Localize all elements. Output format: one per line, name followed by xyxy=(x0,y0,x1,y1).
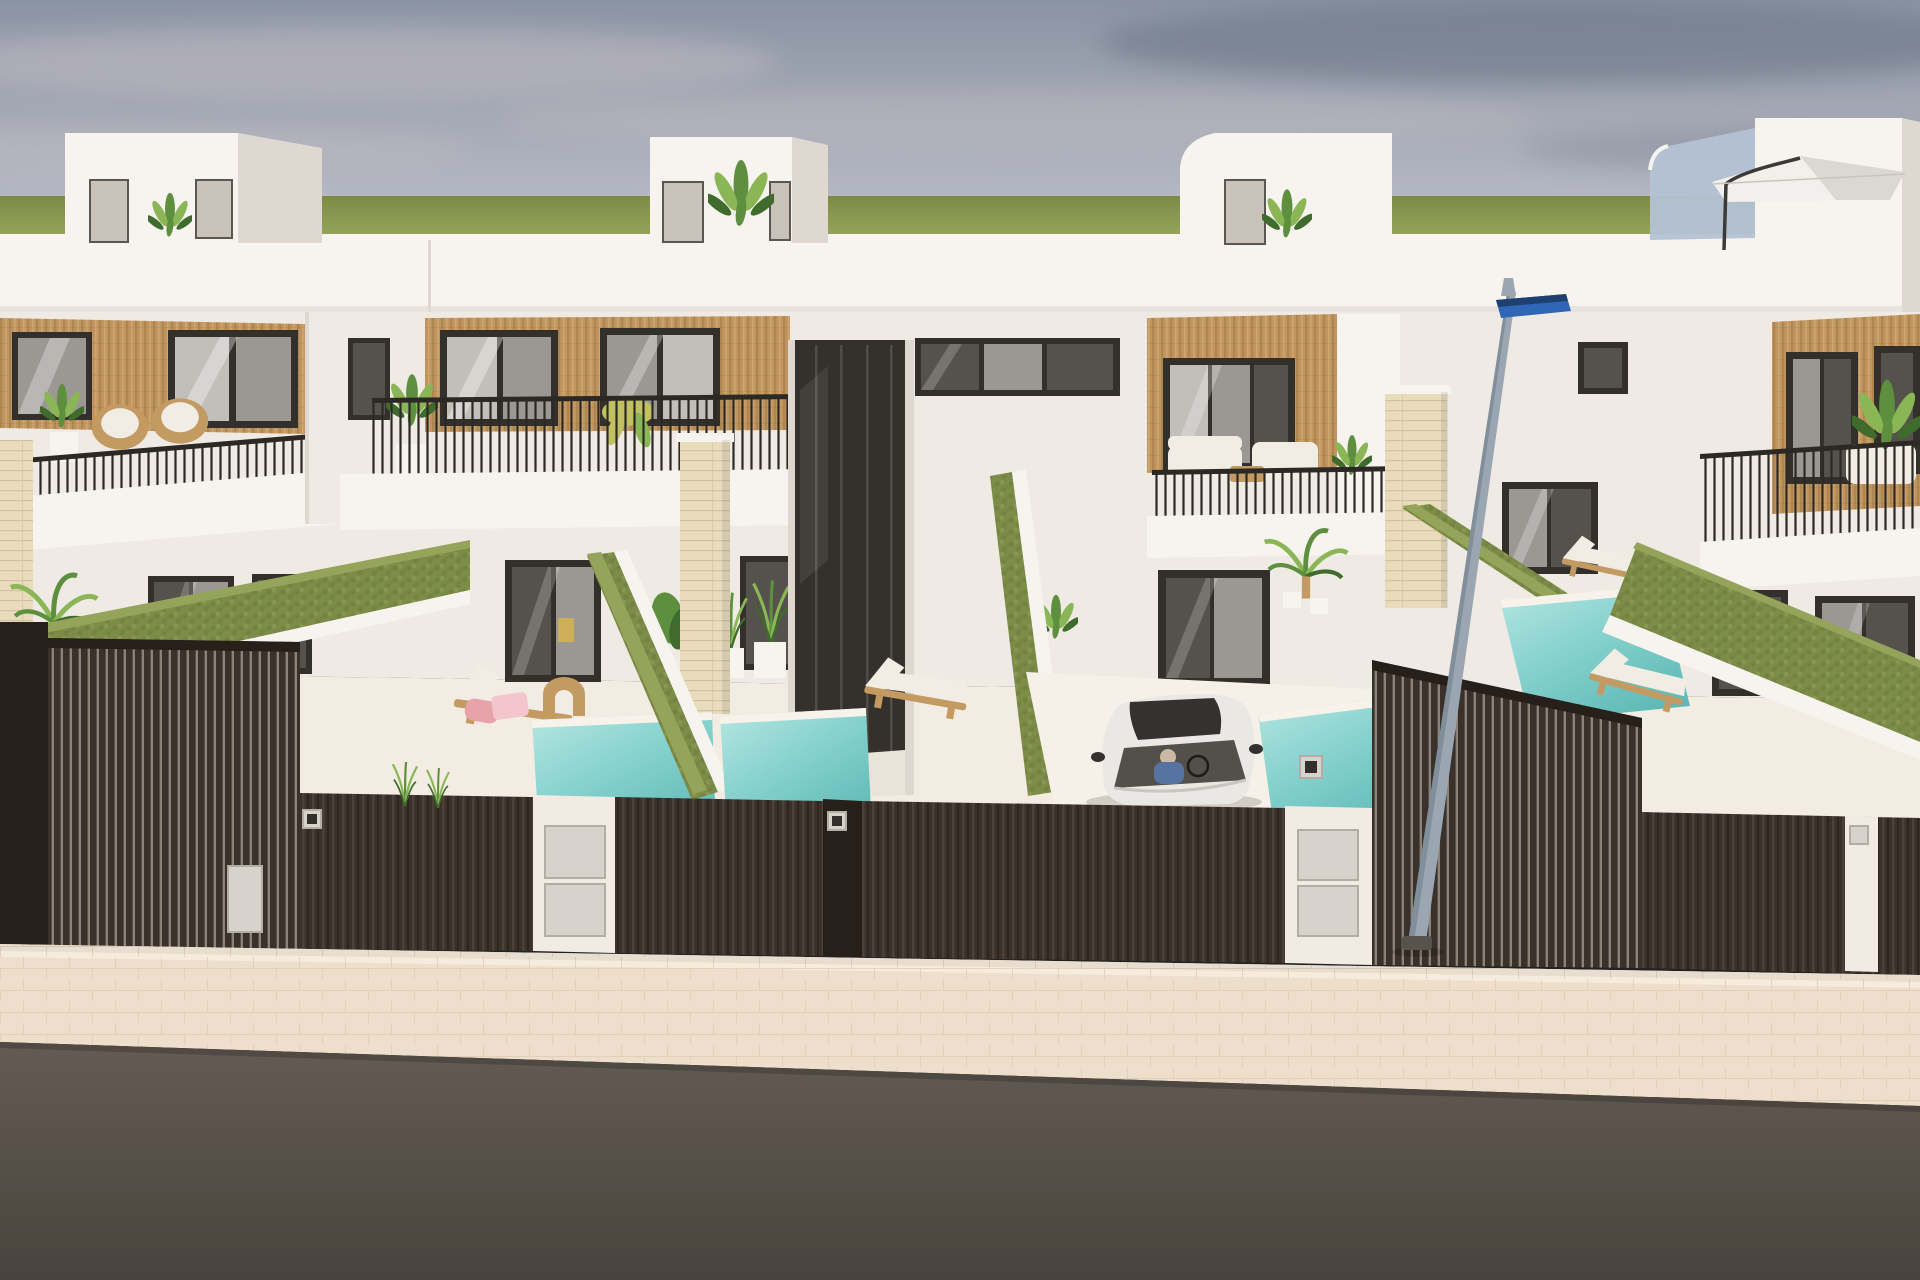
window xyxy=(1578,342,1628,394)
car-mirror xyxy=(1091,752,1105,762)
fence-panel xyxy=(300,793,533,951)
gate-intercom xyxy=(228,866,262,932)
sign-plate xyxy=(303,810,321,828)
meter-door xyxy=(1298,886,1358,936)
entrance-door xyxy=(1158,570,1270,686)
fence-panel xyxy=(615,797,823,956)
fence-panel xyxy=(862,801,1285,963)
fence-panel xyxy=(1642,812,1920,975)
wicker-chair xyxy=(152,398,208,443)
roof-door xyxy=(770,182,790,240)
sign-plate xyxy=(1850,826,1868,844)
driveway-gate-left xyxy=(48,638,300,949)
roof-box-3 xyxy=(1180,133,1392,245)
driver xyxy=(1154,762,1184,784)
roof-box-1 xyxy=(65,133,322,243)
roof-door xyxy=(663,182,703,242)
roof-door xyxy=(90,180,128,242)
fence-pier xyxy=(1845,816,1878,972)
roof-door xyxy=(196,180,232,238)
car-sunroof xyxy=(1130,698,1221,740)
scene-svg xyxy=(0,0,1920,1280)
wicker-chair xyxy=(92,404,148,449)
fence-post-sign xyxy=(823,799,862,957)
sliding-door xyxy=(505,560,601,682)
car-mirror xyxy=(1249,744,1263,754)
clerestory-window xyxy=(915,338,1120,396)
meter-door xyxy=(545,826,605,878)
architectural-render xyxy=(0,0,1920,1280)
balcony-railing xyxy=(372,396,808,476)
pink-towel xyxy=(491,692,530,721)
meter-door xyxy=(1298,830,1358,880)
roof-edge-shadow xyxy=(0,306,1920,312)
fence-corner-panel xyxy=(0,622,48,946)
roof-box-2 xyxy=(650,137,828,243)
meter-door xyxy=(545,884,605,936)
fence-pier-meters xyxy=(533,795,615,953)
balcony-slab xyxy=(1147,512,1402,558)
lamp-base xyxy=(1402,936,1432,950)
roof-door xyxy=(1225,180,1265,244)
stone-pillar xyxy=(1385,392,1447,608)
balcony-railing xyxy=(1700,442,1920,544)
